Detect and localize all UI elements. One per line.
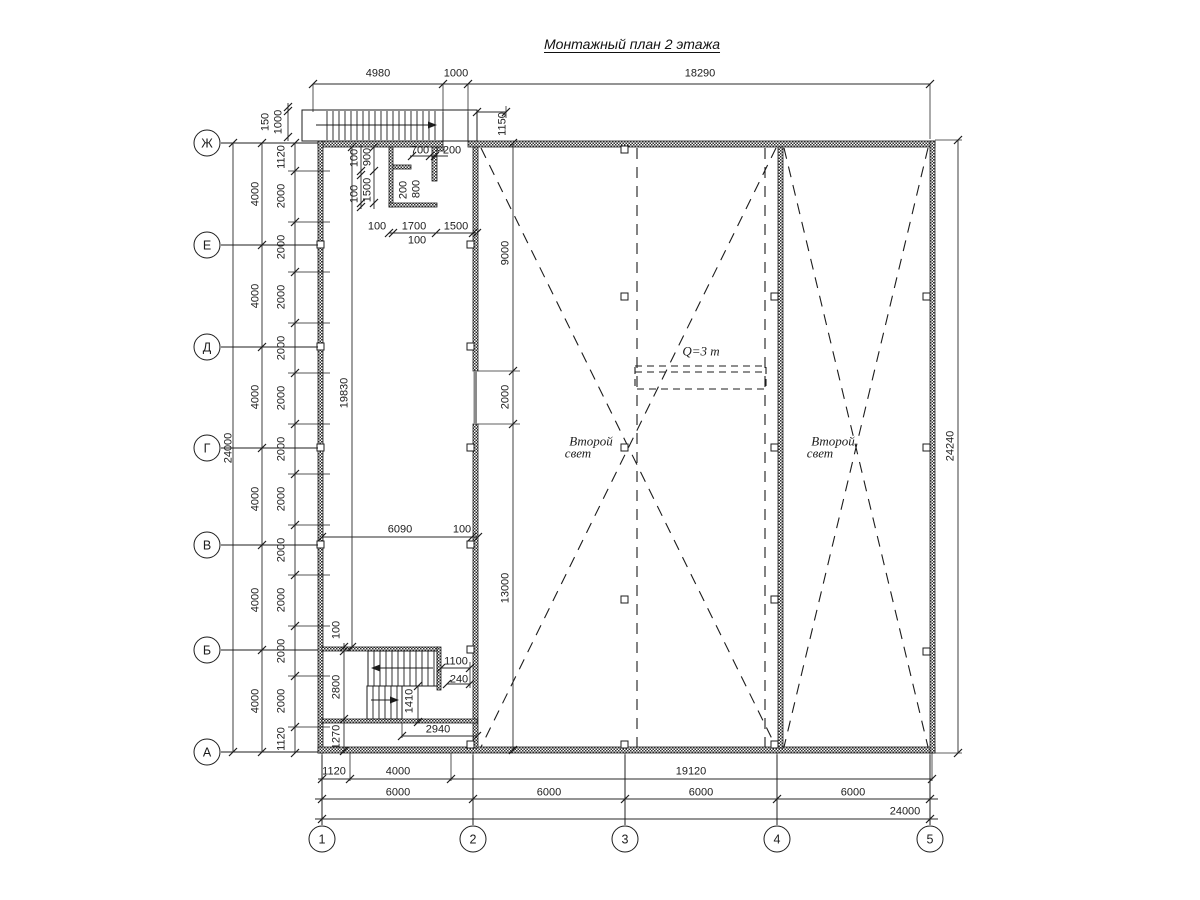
stair-direction-arrow (371, 665, 380, 672)
axis-bubble-col-3: 3 (612, 826, 639, 853)
axis-bubble-row-Е: Е (194, 232, 221, 259)
dim-label: 1410 (405, 689, 416, 713)
dim-label: 2000 (501, 385, 512, 409)
dim-label: 13000 (501, 573, 512, 604)
shaft-wall-stub-mid (393, 165, 411, 169)
dim-label: 1120 (277, 145, 288, 169)
dim-label: 6000 (841, 788, 865, 799)
stair-annex-top (302, 110, 477, 141)
dim-label: 100 (408, 236, 426, 247)
dim-label: 2000 (277, 588, 288, 612)
dim-label: 240 (450, 675, 468, 686)
generated-linework (221, 80, 962, 825)
dim-label: 4000 (251, 385, 262, 409)
dim-label: 2000 (277, 639, 288, 663)
dim-label: 100 (332, 621, 343, 639)
dim-label: 6000 (386, 788, 410, 799)
dim-label: 1000 (274, 110, 285, 134)
dim-label: 2000 (277, 336, 288, 360)
axis-bubble-row-Д: Д (194, 334, 221, 361)
floor-plan-canvas: Монтажный план 2 этажа (0, 0, 1200, 900)
axis-bubble-col-1: 1 (309, 826, 336, 853)
axis-bubble-row-В: В (194, 532, 221, 559)
dim-label: 4000 (386, 767, 410, 778)
wall-axis2-lower (473, 424, 478, 748)
axis-bubble-col-4: 4 (764, 826, 791, 853)
annotation-label: свет (565, 447, 591, 460)
dim-label: 2000 (277, 437, 288, 461)
annotation-label: Q=3 m (682, 345, 719, 358)
dim-label: 2000 (277, 235, 288, 259)
axis-bubble-row-А: А (194, 739, 221, 766)
dim-label: 4000 (251, 182, 262, 206)
axis-bubble-row-Ж: Ж (194, 130, 221, 157)
dim-label: 700 (411, 146, 429, 157)
stair-bottom (367, 651, 437, 719)
plan-drawing (0, 0, 1200, 900)
dimension-lines (233, 84, 958, 819)
crane-outline (635, 366, 766, 389)
dim-label: 150 (261, 113, 272, 131)
dim-label: 100 (368, 222, 386, 233)
shaft-wall-left (389, 147, 393, 207)
second-light-dashed (481, 148, 928, 747)
dim-label: 1150 (498, 112, 509, 136)
dim-label: 2940 (426, 725, 450, 736)
dim-label: 1500 (444, 222, 468, 233)
dim-label: 1500 (363, 178, 374, 202)
corridor-wall (322, 719, 477, 723)
dim-label: 4000 (251, 689, 262, 713)
dim-label: 9000 (501, 241, 512, 265)
axis-bubble-col-5: 5 (917, 826, 944, 853)
annotation-label: свет (807, 447, 833, 460)
dim-label: 900 (363, 148, 374, 166)
dim-label: 24000 (890, 807, 921, 818)
dim-label: 4980 (366, 69, 390, 80)
dim-label: 200 (443, 146, 461, 157)
dim-label: 24000 (224, 433, 235, 464)
dim-label: 6090 (388, 525, 412, 536)
dim-label: 100 (350, 185, 361, 203)
dim-label: 4000 (251, 284, 262, 308)
dim-label: 2000 (277, 285, 288, 309)
wall-axis2-upper (473, 147, 478, 371)
dim-label: 2000 (277, 538, 288, 562)
shaft-wall-bottom (389, 203, 437, 207)
wall-axis2-opening (474, 371, 478, 424)
dim-label: 24240 (946, 431, 957, 462)
dim-label: 1100 (444, 657, 468, 668)
dim-label: 6000 (689, 788, 713, 799)
dim-label: 4000 (251, 588, 262, 612)
dim-label: 6000 (537, 788, 561, 799)
wall-top-right (468, 141, 935, 147)
dim-label: 100 (453, 525, 471, 536)
dim-label: 19830 (340, 378, 351, 409)
stairwell-wall-top (322, 647, 438, 651)
dim-label: 2000 (277, 689, 288, 713)
wall-right (930, 141, 935, 753)
dim-label: 18290 (685, 69, 716, 80)
crane-bridge (635, 366, 766, 389)
dim-label: 1120 (322, 767, 346, 778)
dim-label: 2000 (277, 487, 288, 511)
dim-label: 800 (412, 180, 423, 198)
dim-label: 1270 (332, 725, 343, 749)
dim-label: 1700 (402, 222, 426, 233)
axis-bubble-row-Г: Г (194, 435, 221, 462)
shaft-wall-right (432, 147, 437, 181)
dim-label: 1000 (444, 69, 468, 80)
wall-axis4 (778, 147, 783, 748)
dim-label: 2000 (277, 184, 288, 208)
axis-bubble-row-Б: Б (194, 637, 221, 664)
dim-label: 19120 (676, 767, 707, 778)
dim-label: 200 (399, 181, 410, 199)
dim-label: 1120 (277, 727, 288, 751)
dim-label: 2000 (277, 386, 288, 410)
dim-label: 100 (350, 149, 361, 167)
dim-label: 2800 (332, 675, 343, 699)
dim-label: 4000 (251, 487, 262, 511)
axis-bubble-col-2: 2 (460, 826, 487, 853)
